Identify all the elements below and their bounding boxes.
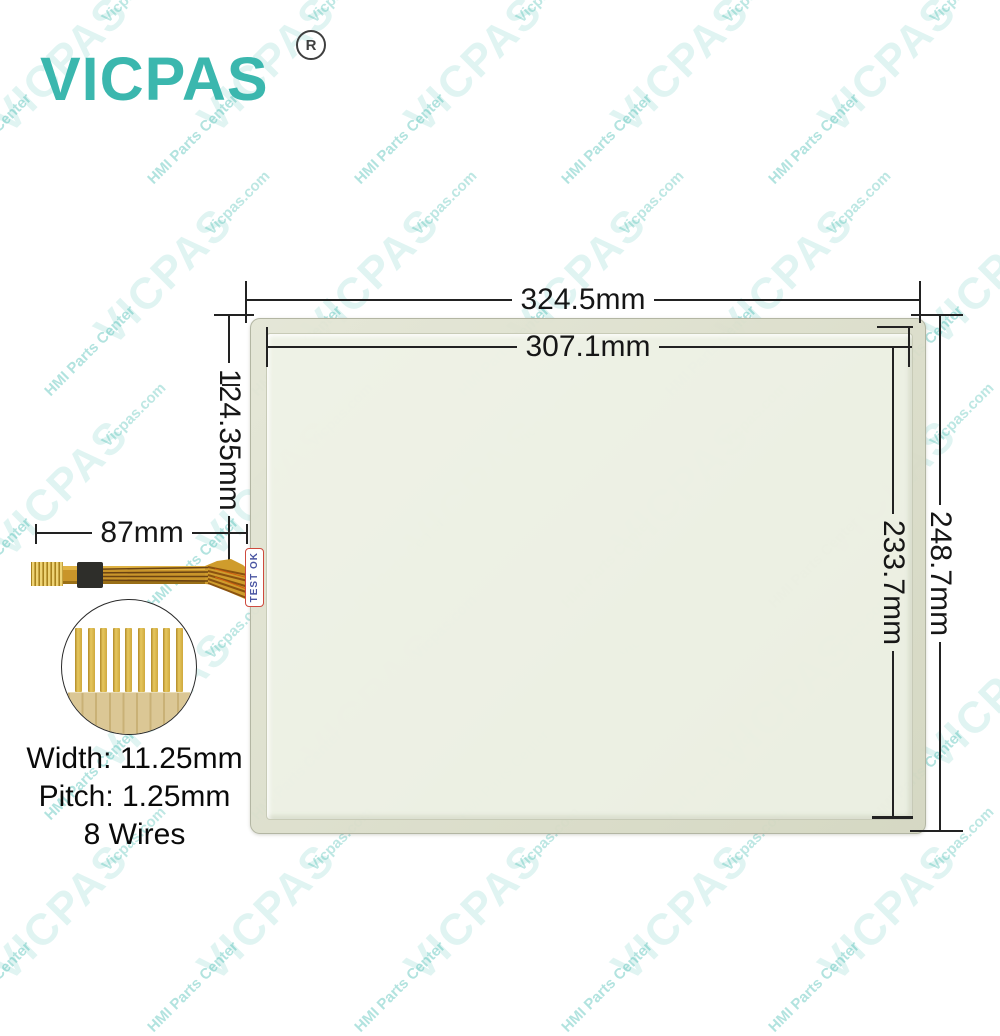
watermark-brand-text: VICPAS <box>809 834 966 991</box>
watermark-tile: Vicpas.com VICPAS HMI Parts Center <box>369 0 579 170</box>
touch-panel-active-area <box>266 333 913 820</box>
watermark-tile: Vicpas.com VICPAS HMI Parts Center <box>576 0 786 170</box>
watermark-tile: Vicpas.com VICPAS HMI Parts Center <box>576 808 786 1018</box>
watermark-brand-text: VICPAS <box>809 0 966 144</box>
watermark-subtitle-text: HMI Parts Center <box>0 90 35 187</box>
test-ok-label: TEST OK <box>245 548 264 607</box>
connector-pin <box>100 628 107 692</box>
dimension-line <box>654 299 919 301</box>
dimension-tick <box>222 384 240 386</box>
dimension-tick <box>872 816 913 819</box>
watermark-domain-text: Vicpas.com <box>410 168 481 239</box>
dimension-line <box>247 299 512 301</box>
dimension-inner-width: 307.1mm <box>268 330 908 364</box>
dimension-line <box>939 642 941 831</box>
watermark-tile: Vicpas.com VICPAS HMI Parts Center <box>369 808 579 1018</box>
dimension-tick <box>919 281 921 323</box>
cable-spec-wires: 8 Wires <box>12 816 257 854</box>
watermark-brand-text: VICPAS <box>602 0 759 144</box>
dimension-tick <box>911 314 963 316</box>
watermark-subtitle-text: HMI Parts Center <box>765 90 862 187</box>
dimension-line <box>228 316 230 363</box>
connector-pin <box>138 628 145 692</box>
watermark-subtitle-text: HMI Parts Center <box>351 90 448 187</box>
watermark-domain-text: Vicpas.com <box>99 0 170 26</box>
dimension-tick <box>910 830 963 832</box>
cable-stiffener <box>77 562 103 588</box>
watermark-domain-text: Vicpas.com <box>824 168 895 239</box>
watermark-brand-text: VICPAS <box>395 834 552 991</box>
dimension-outer-height: 248.7mm <box>923 316 957 831</box>
connector-pin <box>151 628 158 692</box>
watermark-domain-text: Vicpas.com <box>617 168 688 239</box>
dimension-line <box>939 316 941 505</box>
cable-connector <box>31 562 63 586</box>
dimension-line <box>892 651 894 817</box>
dimension-tick <box>266 327 268 367</box>
dimension-tick <box>214 314 254 316</box>
watermark-tile: Vicpas.com VICPAS HMI Parts Center <box>783 0 993 170</box>
registered-trademark-icon: R <box>296 30 326 60</box>
watermark-domain-text: Vicpas.com <box>720 0 791 26</box>
dimension-line <box>268 346 517 348</box>
dimension-cable-offset-label: 124.35mm <box>212 369 246 511</box>
connector-pin <box>125 628 132 692</box>
connector-pin <box>176 628 183 692</box>
watermark-brand-text: VICPAS <box>395 0 552 144</box>
brand-logo: VICPAS <box>40 44 269 114</box>
dimension-line <box>36 532 92 534</box>
watermark-brand-text: VICPAS <box>188 834 345 991</box>
cable-spec-width: Width: 11.25mm <box>12 740 257 778</box>
dimension-outer-width: 324.5mm <box>247 283 919 317</box>
watermark-subtitle-text: HMI Parts Center <box>558 938 655 1035</box>
dimension-tick <box>245 281 247 323</box>
cable-specs-block: Width: 11.25mm Pitch: 1.25mm 8 Wires <box>12 740 257 854</box>
dimension-inner-width-label: 307.1mm <box>525 330 650 364</box>
connector-magnifier-circle <box>61 599 197 735</box>
dimension-tick <box>879 346 912 348</box>
panel-inner-corner-mark <box>877 326 913 328</box>
connector-pin <box>88 628 95 692</box>
cable-spec-pitch: Pitch: 1.25mm <box>12 778 257 816</box>
watermark-subtitle-text: HMI Parts Center <box>765 938 862 1035</box>
connector-pin <box>113 628 120 692</box>
connector-pin <box>75 628 82 692</box>
connector-pin <box>163 628 170 692</box>
watermark-subtitle-text: HMI Parts Center <box>41 302 138 399</box>
watermark-subtitle-text: HMI Parts Center <box>0 938 35 1035</box>
watermark-domain-text: Vicpas.com <box>306 0 377 26</box>
dimension-line <box>892 348 894 514</box>
dimension-outer-height-label: 248.7mm <box>923 511 957 636</box>
test-ok-label-text: TEST OK <box>249 552 260 602</box>
watermark-domain-text: Vicpas.com <box>203 168 274 239</box>
connector-pins-base <box>68 692 190 735</box>
dimension-outer-width-label: 324.5mm <box>520 283 645 317</box>
watermark-domain-text: Vicpas.com <box>513 0 584 26</box>
watermark-tile: Vicpas.com VICPAS HMI Parts Center <box>783 808 993 1018</box>
connector-pins-zoom <box>75 628 183 692</box>
dimension-inner-height-label: 233.7mm <box>876 520 910 645</box>
dimension-cable-offset: 124.35mm <box>212 316 246 563</box>
watermark-brand-text: VICPAS <box>0 834 139 991</box>
watermark-subtitle-text: HMI Parts Center <box>558 90 655 187</box>
watermark-brand-text: VICPAS <box>602 834 759 991</box>
dimension-line <box>659 346 908 348</box>
dimension-inner-height: 233.7mm <box>876 348 910 817</box>
watermark-subtitle-text: HMI Parts Center <box>351 938 448 1035</box>
watermark-domain-text: Vicpas.com <box>99 380 170 451</box>
watermark-subtitle-text: HMI Parts Center <box>144 938 241 1035</box>
watermark-domain-text: Vicpas.com <box>927 0 998 26</box>
